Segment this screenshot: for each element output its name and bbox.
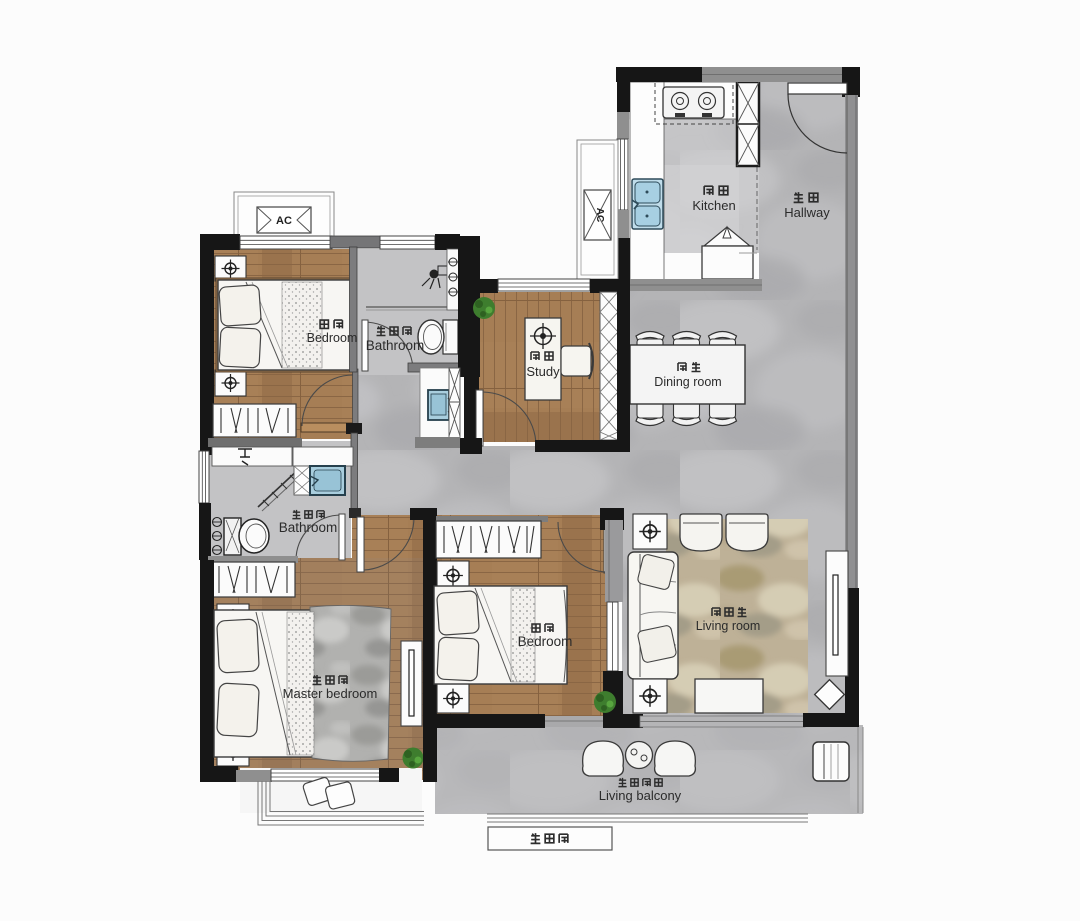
svg-text:Kitchen: Kitchen bbox=[692, 198, 735, 213]
svg-text:Bedroom: Bedroom bbox=[307, 331, 358, 345]
svg-text:Study: Study bbox=[526, 364, 560, 379]
svg-text:Master bedroom: Master bedroom bbox=[283, 686, 378, 701]
svg-text:Bathroom: Bathroom bbox=[366, 338, 425, 353]
svg-text:AC: AC bbox=[594, 208, 605, 222]
svg-text:AC: AC bbox=[276, 215, 292, 227]
svg-text:Bathroom: Bathroom bbox=[279, 520, 338, 535]
svg-text:Dining room: Dining room bbox=[654, 375, 721, 389]
svg-text:Living balcony: Living balcony bbox=[599, 788, 682, 803]
svg-text:Bedroom: Bedroom bbox=[518, 634, 573, 649]
svg-text:Living room: Living room bbox=[696, 619, 761, 633]
svg-text:Hallway: Hallway bbox=[784, 205, 830, 220]
